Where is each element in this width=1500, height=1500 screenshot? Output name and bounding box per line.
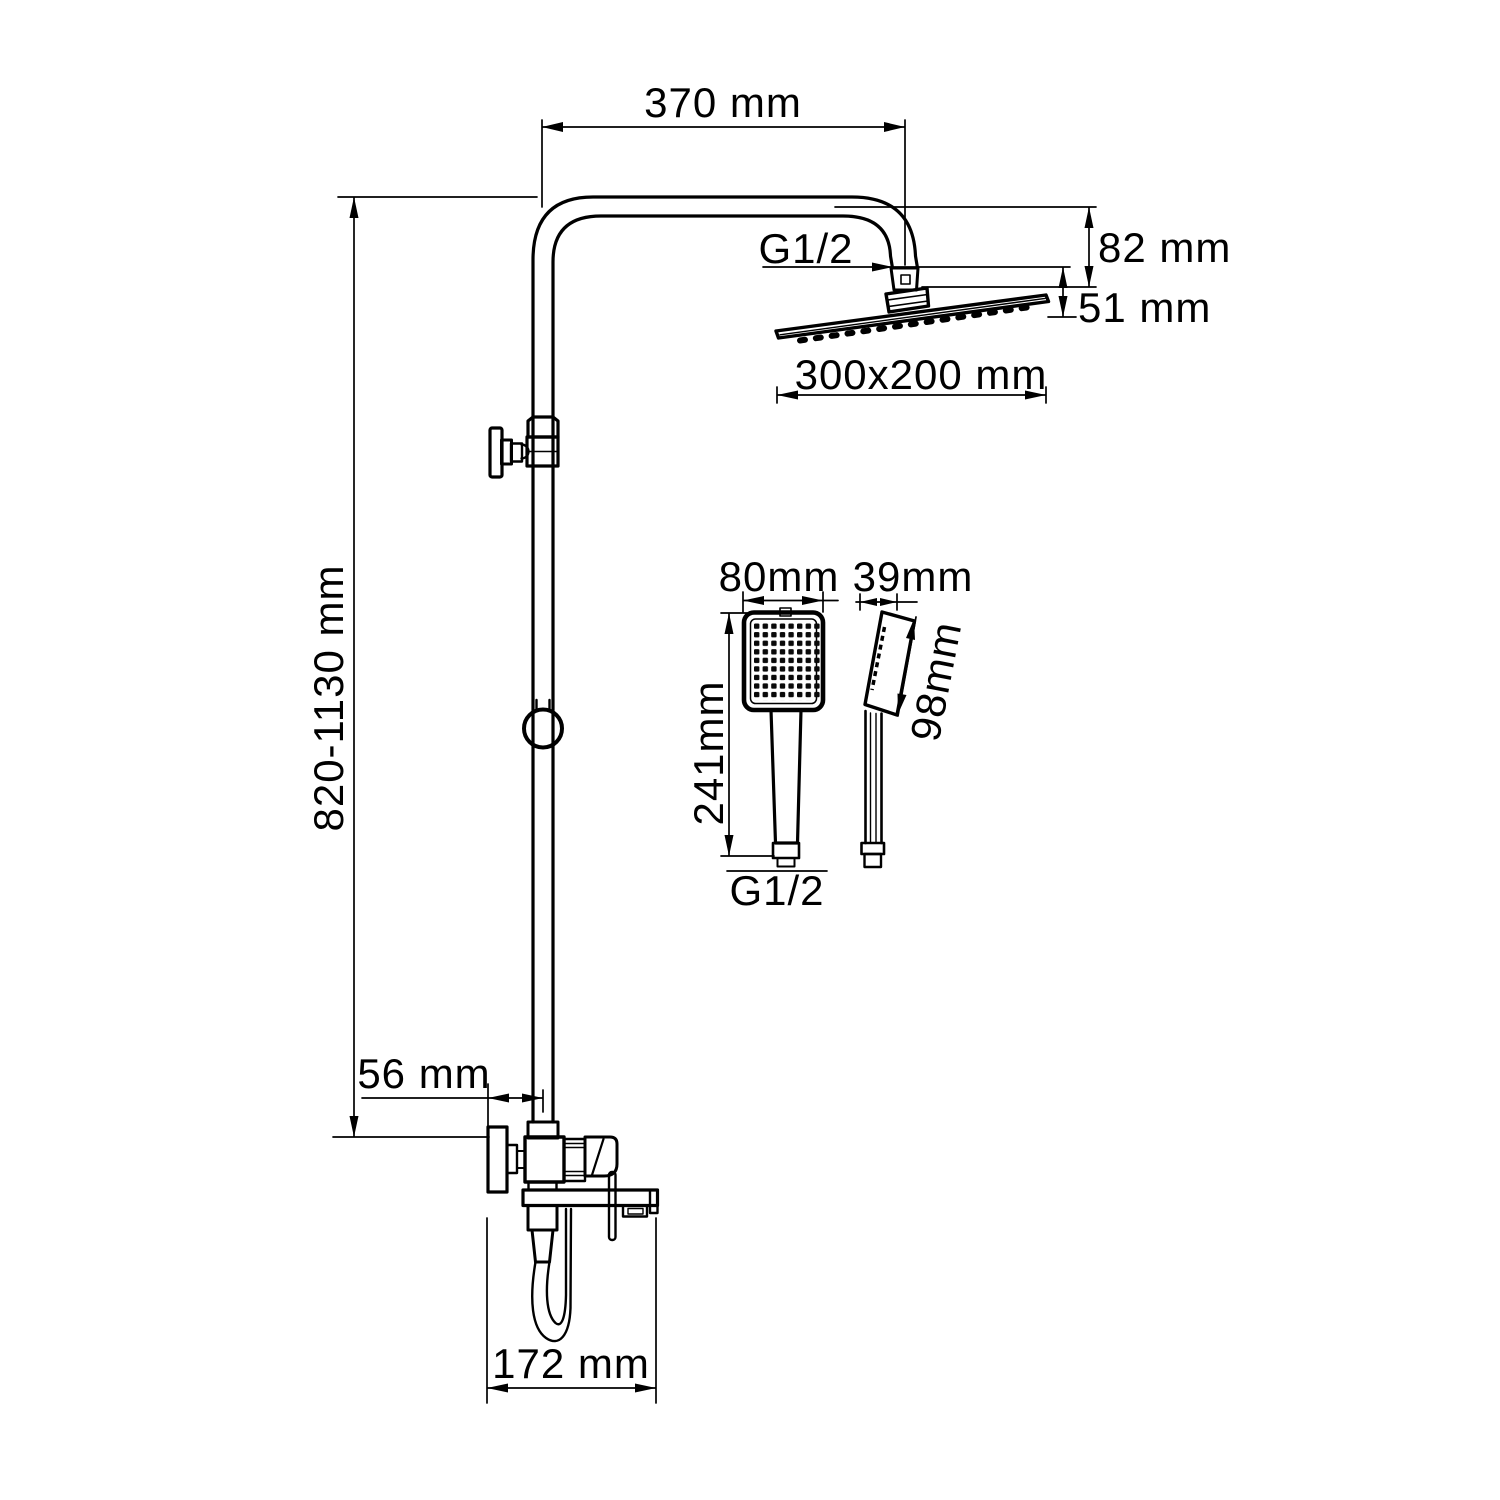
hand-shower-front-view: [744, 608, 823, 867]
spout-end-cap: [650, 1190, 658, 1213]
hand-shower-side-nipple: [865, 854, 882, 867]
label-hand-shower-depth: 39mm: [853, 553, 974, 600]
bath-spout: [523, 1190, 658, 1206]
label-spout-depth: 172 mm: [492, 1340, 650, 1387]
hand-shower-handle: [771, 710, 801, 843]
spout-aerator-inner: [628, 1209, 643, 1215]
swivel-nut: [891, 268, 918, 290]
hose-outlet: [528, 1206, 557, 1231]
ball-joint-bands: [888, 295, 929, 307]
label-rain-head-size: 300x200 mm: [795, 351, 1048, 398]
label-arm-reach: 370 mm: [644, 79, 802, 126]
dimension-labels: 370 mm 82 mm 51 mm G1/2 300x200 mm 820-1…: [305, 79, 1231, 1387]
drawing-canvas: 370 mm 82 mm 51 mm G1/2 300x200 mm 820-1…: [0, 0, 1500, 1500]
hose-outlet-cone: [532, 1230, 553, 1262]
hand-shower-nozzle-grid: [754, 624, 823, 701]
hand-shower-side-view: [862, 612, 915, 867]
cartridge-housing: [564, 1139, 585, 1181]
technical-drawing: 370 mm 82 mm 51 mm G1/2 300x200 mm 820-1…: [0, 0, 1500, 1500]
label-hand-shower-thread: G1/2: [729, 867, 824, 914]
mixer-body: [525, 1137, 564, 1182]
label-column-height-range: 820-1130 mm: [305, 564, 352, 831]
slider-holder-ring: [524, 710, 562, 748]
mixer-handle: [585, 1137, 617, 1176]
label-hand-shower-width: 80mm: [719, 553, 840, 600]
label-head-drop: 82 mm: [1098, 224, 1231, 271]
hand-shower-side-connector: [862, 843, 885, 854]
wall-plate: [488, 1127, 507, 1192]
cartridge-bands: [564, 1144, 585, 1176]
mixer-handle-edge: [592, 1139, 604, 1175]
label-hand-shower-length: 241mm: [685, 680, 732, 825]
hand-shower-side-handle-lines: [871, 713, 877, 843]
hand-shower-side-handle: [866, 711, 882, 843]
label-top-thread: G1/2: [758, 225, 853, 272]
swivel-detail: [901, 275, 910, 284]
label-head-joint-height: 51 mm: [1078, 284, 1211, 331]
label-wall-to-pipe: 56 mm: [357, 1050, 490, 1097]
hand-shower-connector: [773, 843, 799, 858]
riser-and-arm-outer: [533, 197, 918, 1122]
